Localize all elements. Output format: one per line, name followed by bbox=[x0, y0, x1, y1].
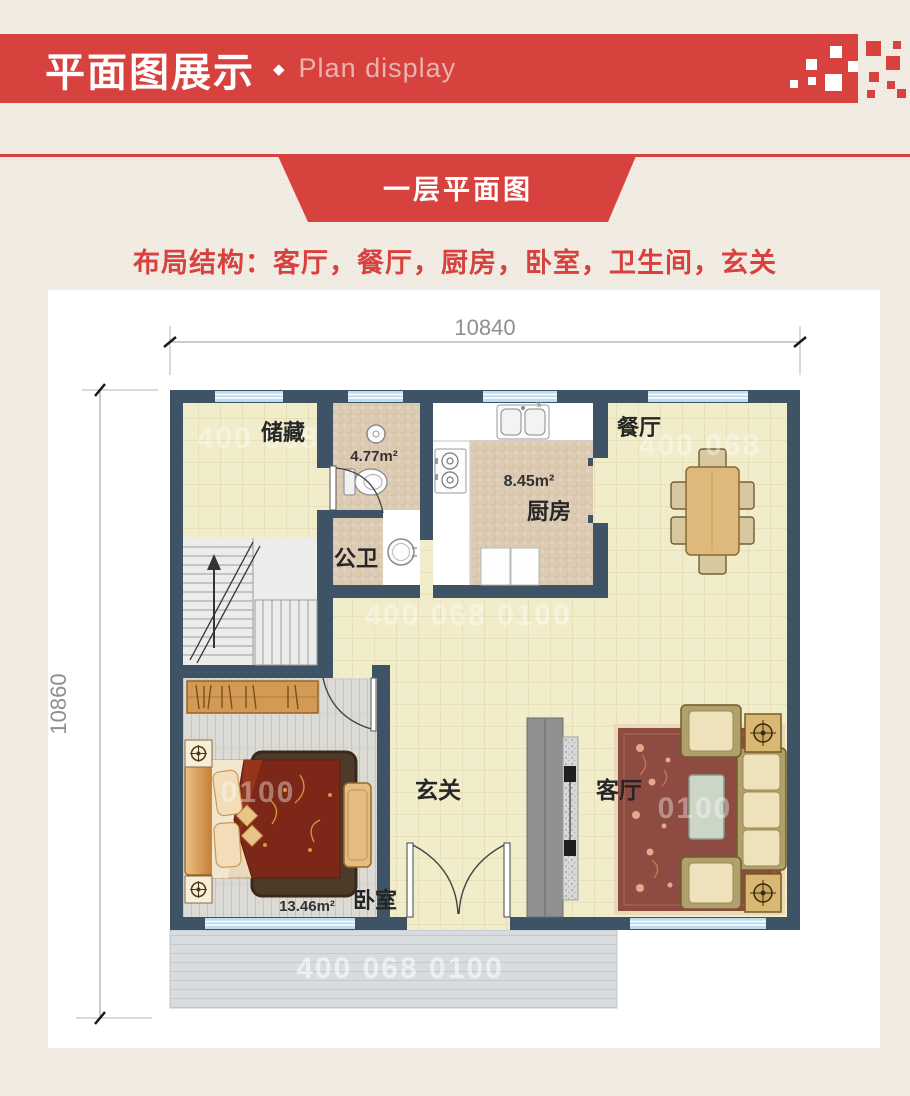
dim-top-label: 10840 bbox=[454, 315, 515, 340]
wall-basin bbox=[367, 425, 385, 443]
layout-summary: 布局结构：客厅，餐厅，厨房，卧室，卫生间，玄关 bbox=[0, 241, 910, 280]
page-subtitle: Plan display bbox=[299, 53, 457, 84]
svg-text:400 068 0100: 400 068 0100 bbox=[364, 599, 572, 632]
dining-chair bbox=[699, 554, 726, 574]
window bbox=[348, 391, 403, 402]
tv-unit bbox=[564, 766, 576, 782]
armchair bbox=[681, 705, 741, 757]
entry-label: 玄关 bbox=[415, 777, 461, 803]
stove bbox=[435, 449, 466, 493]
kitchen-label: 厨房 bbox=[527, 499, 571, 524]
dining-label: 餐厅 bbox=[617, 415, 661, 440]
kitchen-sink bbox=[497, 402, 549, 439]
floor-plan-panel: 10840 10860 bbox=[48, 290, 880, 1048]
nightstand bbox=[185, 876, 212, 903]
side-table bbox=[745, 874, 781, 912]
svg-text:0100: 0100 bbox=[658, 792, 733, 825]
wardrobe bbox=[187, 681, 318, 713]
armchair bbox=[681, 857, 741, 909]
fridge-cabinet bbox=[481, 548, 539, 585]
section-ribbon-label: 一层平面图 bbox=[308, 156, 608, 218]
nightstand bbox=[185, 740, 212, 767]
bed-bench bbox=[344, 783, 371, 867]
diamond-icon: ◆ bbox=[273, 60, 285, 78]
living-label: 客厅 bbox=[596, 777, 642, 803]
kitchen-area: 8.45m² bbox=[504, 473, 555, 490]
storage-label: 储藏 bbox=[261, 420, 305, 445]
bathroom-area: 4.77m² bbox=[350, 448, 398, 465]
window bbox=[205, 918, 355, 929]
bathroom-label: 公卫 bbox=[334, 546, 378, 571]
bedroom-label: 卧室 bbox=[353, 888, 397, 913]
window bbox=[215, 391, 283, 402]
toilet bbox=[344, 469, 387, 495]
svg-text:0100: 0100 bbox=[221, 776, 296, 809]
window bbox=[630, 918, 766, 929]
tv-wall bbox=[527, 718, 578, 917]
svg-text:400 068 0100: 400 068 0100 bbox=[296, 952, 504, 985]
window bbox=[648, 391, 748, 402]
pillow bbox=[213, 822, 241, 868]
floor-plan-drawing: 10840 10860 bbox=[48, 290, 880, 1048]
page-title: 平面图展示 bbox=[45, 40, 255, 98]
bedroom-area: 13.46m² bbox=[279, 898, 335, 915]
dim-left-label: 10860 bbox=[48, 673, 71, 734]
header-banner: 平面图展示 ◆ Plan display bbox=[0, 34, 858, 103]
sofa-three-seat bbox=[737, 748, 786, 870]
window bbox=[483, 391, 557, 402]
side-table bbox=[745, 714, 781, 752]
